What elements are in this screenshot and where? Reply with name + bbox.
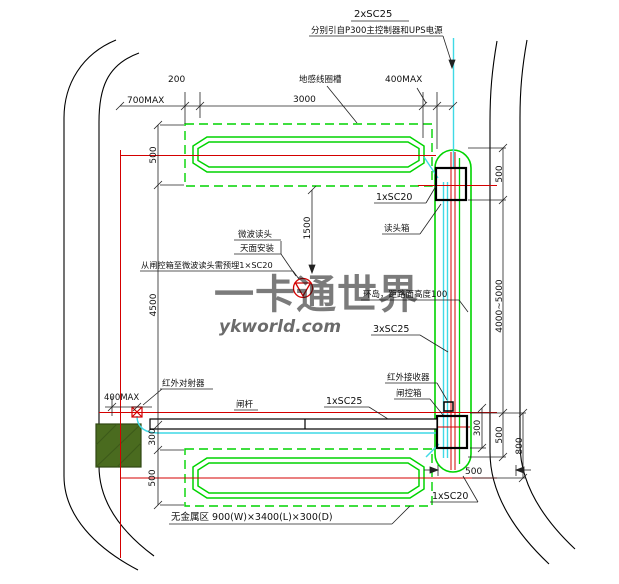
barrier-gate-installation-diagram: 2xSC25 分别引自P300主控制器和UPS电源 700MAX 200 300… [0,0,619,584]
dim-3000-label: 3000 [293,95,316,105]
conduit-2xsc25-label: 2xSC25 [354,9,392,20]
no-metal-zone-label: 无金属区 900(W)×3400(L)×300(D) [171,511,333,523]
dim-300-right-label: 300 [473,420,483,436]
watermark-url: ykworld.com [219,317,341,337]
barrier-arm-symbol [150,419,437,429]
dim-4000-5000-label: 4000~5000 [495,279,505,333]
gate-ctrl-box-label: 闸控箱 [396,388,422,399]
dim-400max-top-label: 400MAX [385,75,422,85]
cad-drawing-canvas: 2xSC25 分别引自P300主控制器和UPS电源 700MAX 200 300… [0,0,619,584]
control-cabinet [96,424,141,467]
dim-400max-left-label: 400MAX [104,393,139,403]
conduit-3xsc25-label: 3xSC25 [373,324,409,335]
dim-500-bottomh-label: 500 [465,467,482,477]
mw-head-label: 微波读头 [238,229,273,240]
dim-300-left-label: 300 [148,428,158,445]
dim-1500-label: 1500 [303,216,313,239]
mw-conduit-note-label: 从闸控箱至微波读头需预埋1×SC20 [141,260,273,270]
reader-box-label: 读头箱 [384,223,410,234]
feed-note-label: 分别引自P300主控制器和UPS电源 [311,25,443,36]
conduit-1xsc25-label: 1xSC25 [326,396,362,407]
dim-700max-label: 700MAX [127,96,164,106]
ir-receiver-symbol [444,402,453,411]
dim-500-botleft-label: 500 [148,469,158,486]
ir-emitter-label: 红外对射器 [162,378,205,389]
dim-4500-label: 4500 [149,293,159,316]
dim-500-topleft-label: 500 [149,146,159,163]
loop-slot-label: 地感线圈槽 [299,74,342,85]
mw-mount-label: 天面安装 [240,243,275,254]
barrier-arm-label: 闸杆 [236,399,254,410]
bottom-conduit-label: 1xSC20 [432,491,468,502]
dim-500-topright-label: 500 [495,165,505,182]
ir-receiver-label: 红外接收器 [387,372,430,383]
dim-800-label: 800 [515,437,525,454]
reader-conduit-label: 1xSC20 [376,192,412,203]
watermark-cn: 一卡通世界 [214,272,419,318]
dim-500-rightbottom-label: 500 [495,426,505,443]
dim-200-label: 200 [168,75,185,85]
barrier-machine-box [437,416,467,448]
